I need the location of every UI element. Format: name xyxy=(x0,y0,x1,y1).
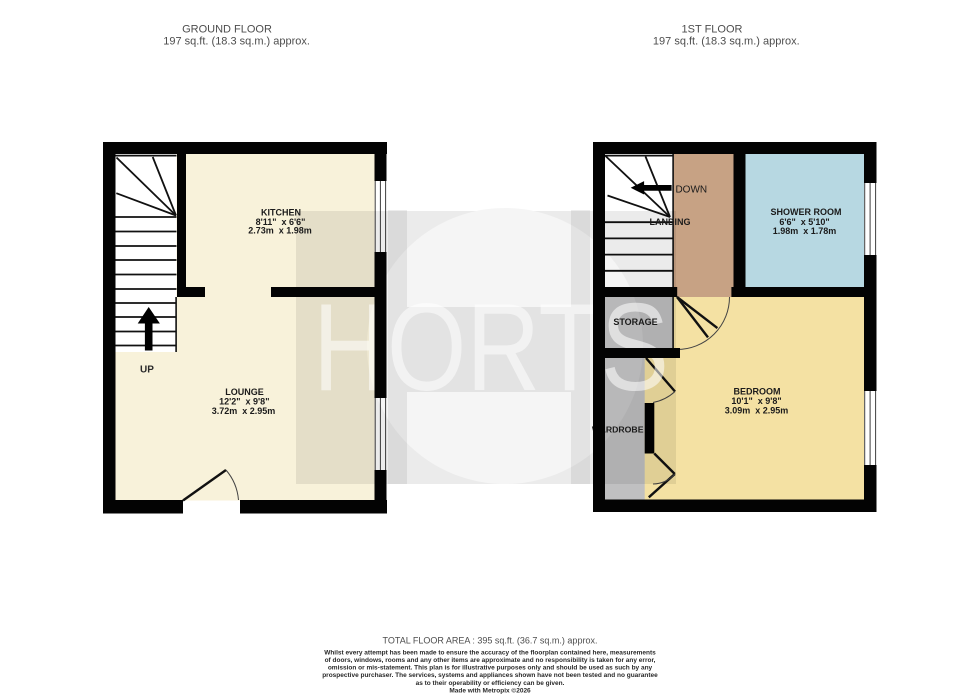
svg-text:10'1" x 9'8": 10'1" x 9'8" xyxy=(731,396,781,406)
svg-text:KITCHEN: KITCHEN xyxy=(261,207,301,217)
svg-text:2.73m x 1.98m: 2.73m x 1.98m xyxy=(248,225,312,235)
svg-text:omission or mis-statement. Thi: omission or mis-statement. This plan is … xyxy=(328,665,653,672)
svg-text:STORAGE: STORAGE xyxy=(613,317,657,327)
svg-text:DOWN: DOWN xyxy=(675,184,707,195)
svg-text:GROUND FLOOR: GROUND FLOOR xyxy=(182,24,272,36)
svg-text:1ST FLOOR: 1ST FLOOR xyxy=(682,24,743,36)
svg-text:BEDROOM: BEDROOM xyxy=(734,386,781,396)
svg-text:Made with Metropix ©2026: Made with Metropix ©2026 xyxy=(449,686,531,694)
svg-text:SHOWER ROOM: SHOWER ROOM xyxy=(771,207,842,217)
svg-text:197 sq.ft. (18.3 sq.m.) approx: 197 sq.ft. (18.3 sq.m.) approx. xyxy=(163,36,310,48)
svg-text:3.72m x 2.95m: 3.72m x 2.95m xyxy=(212,406,276,416)
svg-text:TOTAL FLOOR AREA : 395 sq.ft.: TOTAL FLOOR AREA : 395 sq.ft. (36.7 sq.m… xyxy=(383,636,598,646)
svg-text:UP: UP xyxy=(140,365,154,376)
svg-text:LANDING: LANDING xyxy=(650,217,691,227)
svg-text:prospective purchaser. The ser: prospective purchaser. The services, sys… xyxy=(322,672,658,679)
svg-text:LOUNGE: LOUNGE xyxy=(225,387,264,397)
svg-text:197 sq.ft. (18.3 sq.m.) approx: 197 sq.ft. (18.3 sq.m.) approx. xyxy=(653,36,800,48)
svg-text:12'2" x 9'8": 12'2" x 9'8" xyxy=(219,396,269,406)
svg-text:as to their operability or eff: as to their operability or efficiency ca… xyxy=(416,680,565,687)
svg-text:of doors, windows, rooms and a: of doors, windows, rooms and any other i… xyxy=(325,657,656,664)
svg-text:3.09m x 2.95m: 3.09m x 2.95m xyxy=(725,405,789,415)
svg-text:Whilst every attempt has been: Whilst every attempt has been made to en… xyxy=(324,649,656,656)
svg-text:1.98m x 1.78m: 1.98m x 1.78m xyxy=(773,226,837,236)
